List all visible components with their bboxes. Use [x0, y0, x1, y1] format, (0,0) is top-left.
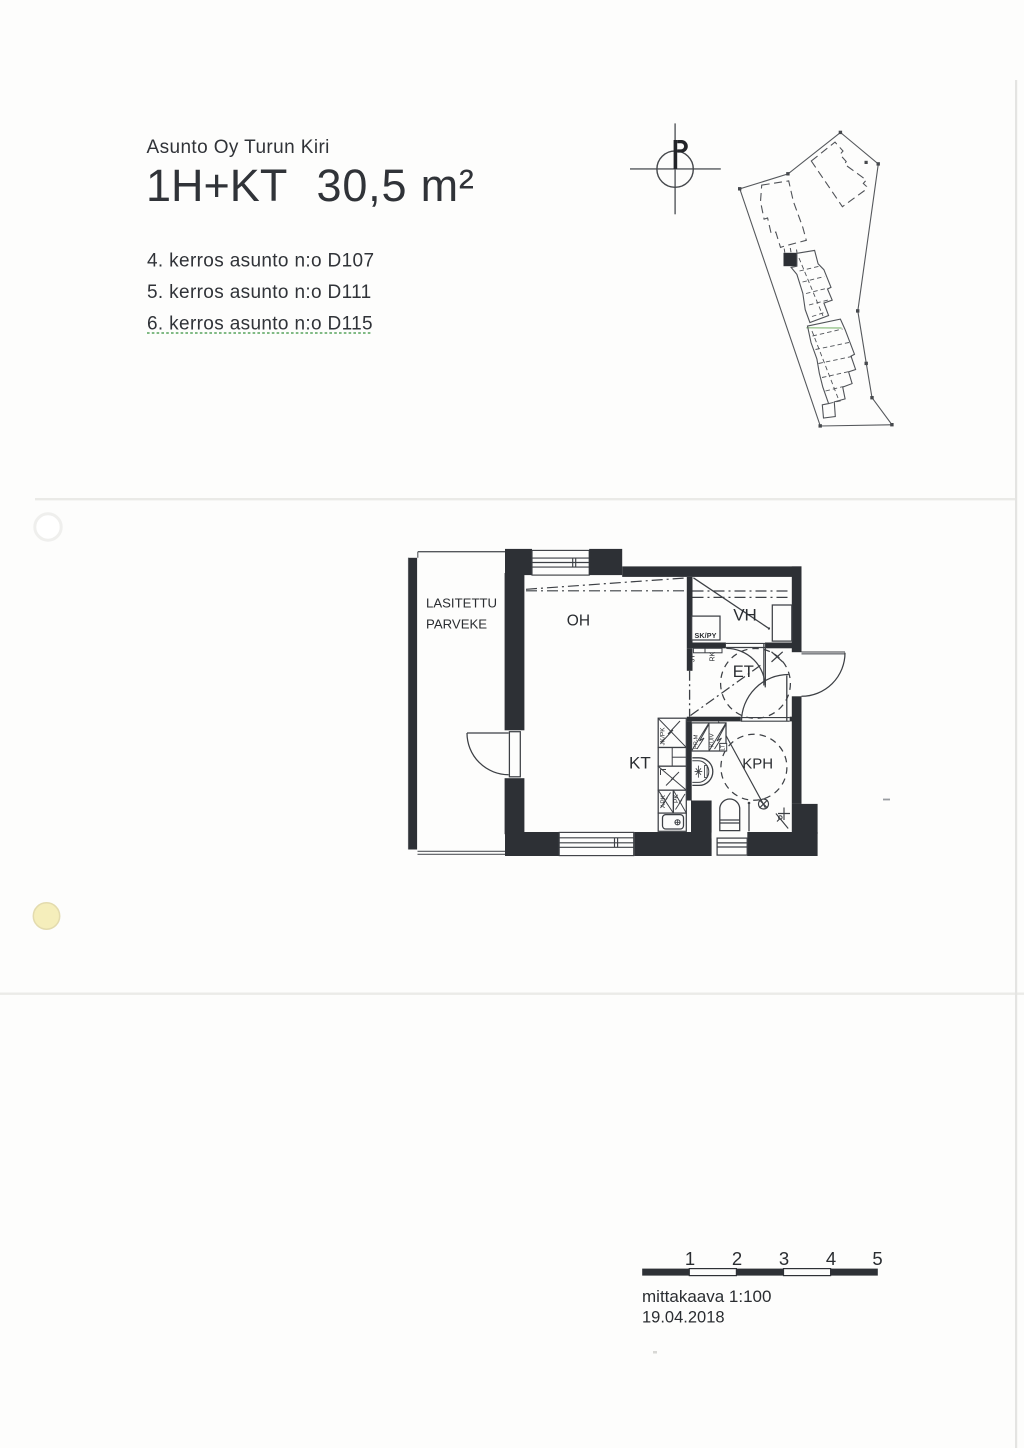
- svg-text:APK: APK: [660, 794, 667, 808]
- svg-text:5: 5: [872, 1248, 882, 1269]
- svg-text:Asunto Oy Turun Kiri: Asunto Oy Turun Kiri: [147, 137, 330, 158]
- svg-text:PK: PK: [673, 794, 680, 803]
- svg-text:2: 2: [732, 1248, 742, 1269]
- svg-text:KUIV: KUIV: [710, 733, 716, 747]
- svg-text:mittakaava 1:100: mittakaava 1:100: [642, 1287, 771, 1306]
- svg-text:JT: JT: [689, 654, 696, 663]
- svg-text:RK: RK: [709, 651, 716, 661]
- svg-text:KPH: KPH: [742, 755, 773, 772]
- svg-text:LASITETTU: LASITETTU: [426, 595, 497, 610]
- svg-text:ET: ET: [733, 663, 754, 681]
- svg-text:19.04.2018: 19.04.2018: [642, 1309, 725, 1327]
- svg-text:3: 3: [779, 1248, 789, 1269]
- svg-text:VH: VH: [733, 606, 757, 625]
- svg-text:PP-M: PP-M: [694, 734, 700, 749]
- svg-text:OH: OH: [567, 613, 590, 630]
- svg-text:6. kerros asunto n:o D115: 6. kerros asunto n:o D115: [147, 314, 373, 335]
- svg-text:1: 1: [685, 1248, 695, 1269]
- svg-text:5. kerros asunto n:o D111: 5. kerros asunto n:o D111: [147, 282, 372, 303]
- svg-text:4. kerros asunto n:o D107: 4. kerros asunto n:o D107: [147, 251, 374, 272]
- svg-text:4: 4: [826, 1248, 836, 1269]
- svg-text:SK/PY: SK/PY: [695, 631, 717, 640]
- svg-text:JK/PK: JK/PK: [660, 727, 667, 746]
- svg-text:KT: KT: [629, 753, 651, 772]
- svg-text:LT: LT: [721, 745, 727, 750]
- svg-text:PARVEKE: PARVEKE: [426, 617, 487, 632]
